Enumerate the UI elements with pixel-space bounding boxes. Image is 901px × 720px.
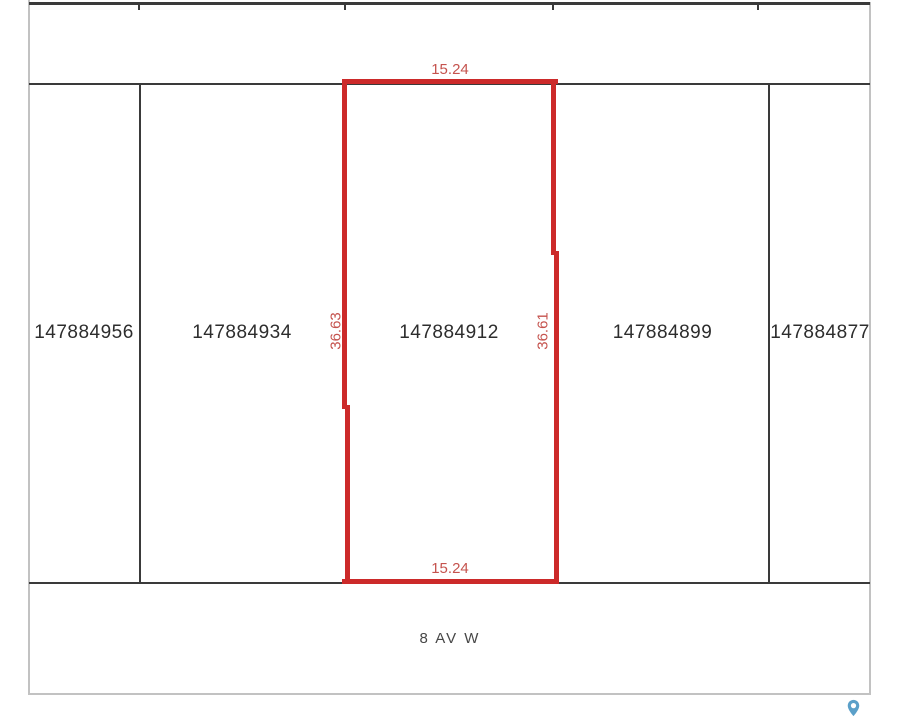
parcel-region-147884877[interactable]: 147884877 — [770, 84, 870, 582]
map-viewport: 147884956 147884934 147884912 147884899 … — [0, 0, 901, 720]
selected-parcel-outline-right-upper — [551, 79, 556, 255]
parcel-tick — [552, 5, 554, 10]
parcel-label: 147884899 — [613, 322, 713, 344]
dimension-label-top: 15.24 — [342, 61, 558, 78]
street-label: 8 AV W — [350, 630, 550, 647]
parcel-label: 147884934 — [192, 322, 292, 344]
north-street-line — [29, 2, 870, 5]
parcel-region-147884912-selected[interactable]: 147884912 — [347, 84, 551, 582]
selected-parcel-outline-top — [342, 79, 558, 84]
parcel-label: 147884877 — [770, 322, 870, 344]
parcel-tick — [757, 5, 759, 10]
selected-parcel-outline-right-lower — [554, 251, 559, 584]
dimension-label-left: 36.63 — [328, 312, 345, 350]
parcel-region-147884899[interactable]: 147884899 — [557, 84, 768, 582]
dimension-label-bottom: 15.24 — [342, 560, 558, 577]
selected-parcel-outline-left-upper — [342, 79, 347, 409]
selected-parcel-outline-left-lower — [345, 405, 350, 584]
map-pin-icon[interactable] — [846, 699, 861, 717]
dimension-label-right: 36.61 — [535, 312, 552, 350]
parcel-region-147884934[interactable]: 147884934 — [141, 84, 343, 582]
parcel-tick — [344, 5, 346, 10]
selected-parcel-outline-bottom — [342, 579, 558, 584]
map-frame-bottom — [28, 693, 871, 695]
parcel-label: 147884912 — [399, 322, 499, 344]
parcel-region-147884956[interactable]: 147884956 — [29, 84, 139, 582]
parcel-label: 147884956 — [34, 322, 134, 344]
parcel-tick — [138, 5, 140, 10]
